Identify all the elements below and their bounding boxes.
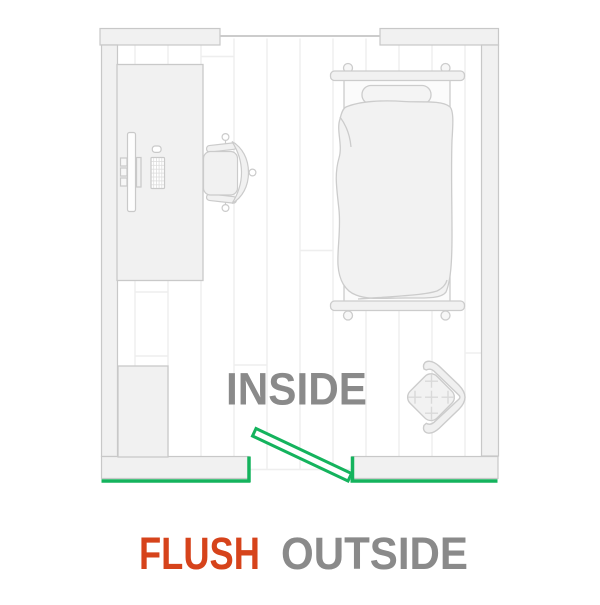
svg-text:FLUSH: FLUSH [139, 528, 260, 579]
svg-text:INSIDE: INSIDE [226, 364, 367, 415]
svg-text:OUTSIDE: OUTSIDE [281, 528, 468, 579]
